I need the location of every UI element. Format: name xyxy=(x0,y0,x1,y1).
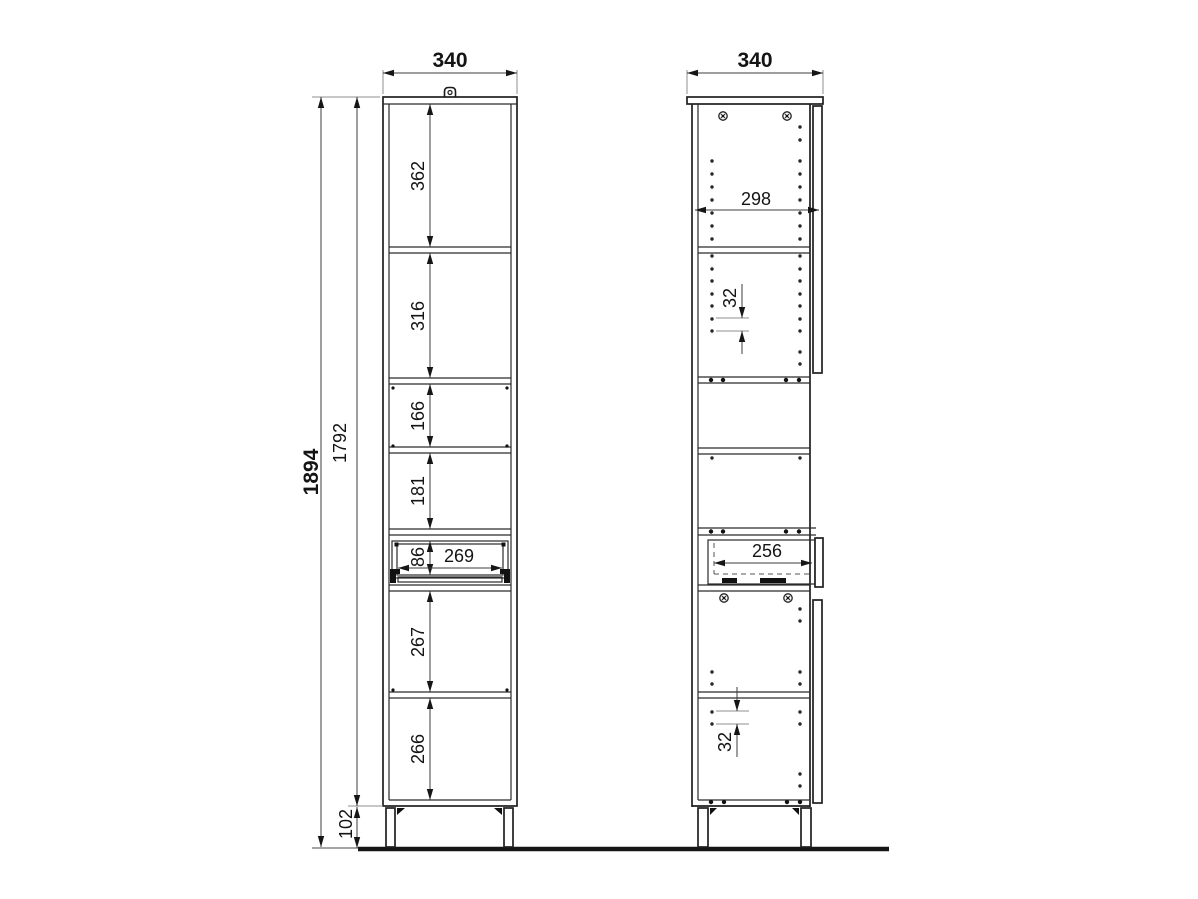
dim-label-front-width: 340 xyxy=(432,49,467,72)
dim-label-carcass-height: 1792 xyxy=(330,423,350,463)
cabinet-technical-drawing: 340 1894 1792 102 362 xyxy=(0,0,1198,899)
side-upper-door xyxy=(813,106,822,373)
dim-label-compartment-2: 316 xyxy=(408,301,428,331)
cam-lock-icon xyxy=(783,112,791,120)
dim-label-hole-pitch-lower: 32 xyxy=(715,732,735,752)
dim-label-compartment-3: 166 xyxy=(408,401,428,431)
dim-label-hole-pitch-upper: 32 xyxy=(720,288,740,308)
cam-lock-icon xyxy=(720,594,728,602)
floor-line xyxy=(312,848,889,849)
dim-label-compartment-5: 267 xyxy=(408,627,428,657)
dim-label-compartment-1: 362 xyxy=(408,161,428,191)
dim-label-drawer-depth: 256 xyxy=(752,541,782,561)
cam-lock-icon xyxy=(719,112,727,120)
dim-label-compartment-4: 181 xyxy=(408,476,428,506)
dim-label-drawer-height: 86 xyxy=(408,547,428,567)
technical-drawing-page: 340 1894 1792 102 362 xyxy=(0,0,1198,899)
side-lower-door xyxy=(813,600,822,803)
dim-label-compartment-6: 266 xyxy=(408,734,428,764)
front-carcass xyxy=(383,97,517,806)
dim-label-plinth-height: 102 xyxy=(336,809,356,839)
cam-lock-icon xyxy=(784,594,792,602)
canvas-background xyxy=(0,0,1198,899)
dim-label-interior-depth: 298 xyxy=(741,189,771,209)
dim-label-side-width: 340 xyxy=(737,49,772,72)
dim-label-drawer-width: 269 xyxy=(444,546,474,566)
dim-label-overall-height: 1894 xyxy=(300,448,323,495)
